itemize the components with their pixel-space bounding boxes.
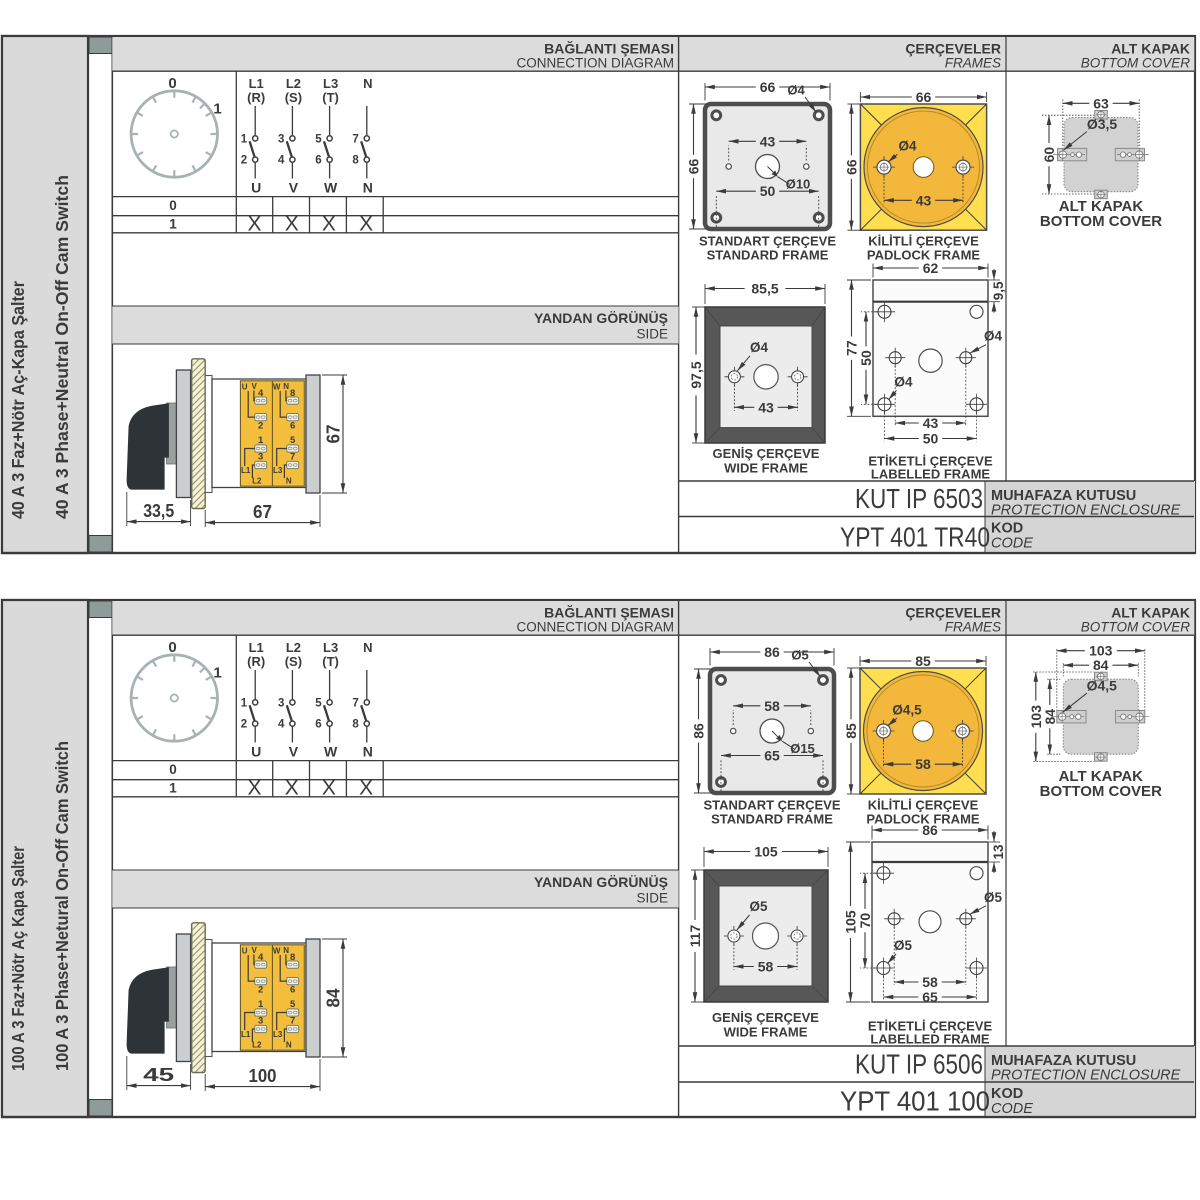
svg-text:N: N <box>363 640 372 655</box>
svg-text:KUT IP 6503: KUT IP 6503 <box>855 483 983 514</box>
svg-text:L1: L1 <box>241 466 251 475</box>
svg-text:1: 1 <box>241 697 248 709</box>
svg-text:33,5: 33,5 <box>143 501 174 521</box>
svg-text:3: 3 <box>278 133 284 145</box>
svg-text:100 A 3 Faz+Nötr Aç Kapa Şalte: 100 A 3 Faz+Nötr Aç Kapa Şalter <box>8 846 28 1071</box>
svg-text:63: 63 <box>1093 95 1109 111</box>
svg-text:V: V <box>289 744 299 760</box>
svg-text:0: 0 <box>168 75 176 92</box>
svg-text:4: 4 <box>278 719 285 731</box>
svg-text:X: X <box>359 212 373 235</box>
svg-text:N: N <box>363 76 372 91</box>
svg-text:YPT 401 TR40: YPT 401 TR40 <box>840 522 990 553</box>
svg-text:Ø4: Ø4 <box>898 139 917 154</box>
svg-text:Ø4,5: Ø4,5 <box>1087 678 1118 694</box>
svg-text:Ø5: Ø5 <box>749 899 768 914</box>
svg-text:CODE: CODE <box>991 1101 1033 1117</box>
svg-text:105: 105 <box>754 844 778 860</box>
svg-text:KİLİTLİ ÇERÇEVE: KİLİTLİ ÇERÇEVE <box>868 798 979 813</box>
svg-text:U: U <box>251 180 261 196</box>
svg-text:GENİŞ ÇERÇEVE: GENİŞ ÇERÇEVE <box>712 1010 819 1025</box>
svg-text:N: N <box>283 382 289 391</box>
svg-text:43: 43 <box>758 399 774 415</box>
svg-text:58: 58 <box>758 959 774 975</box>
svg-text:8: 8 <box>352 719 359 731</box>
svg-text:PROTECTION ENCLOSURE: PROTECTION ENCLOSURE <box>991 503 1181 519</box>
svg-text:9,5: 9,5 <box>991 281 1006 300</box>
svg-text:1: 1 <box>213 101 221 118</box>
svg-text:W: W <box>324 180 338 196</box>
svg-text:84: 84 <box>324 989 344 1008</box>
svg-text:(R): (R) <box>247 654 265 669</box>
svg-text:65: 65 <box>764 748 780 764</box>
svg-text:BAĞLANTI ŞEMASI: BAĞLANTI ŞEMASI <box>544 40 674 57</box>
svg-text:4: 4 <box>278 155 285 167</box>
svg-text:86: 86 <box>764 644 780 660</box>
svg-text:L3: L3 <box>273 1030 283 1039</box>
svg-text:FRAMES: FRAMES <box>945 620 1001 635</box>
svg-text:66: 66 <box>843 159 859 175</box>
svg-text:Ø4: Ø4 <box>894 374 913 389</box>
svg-text:Ø5: Ø5 <box>791 648 808 663</box>
svg-text:2: 2 <box>258 984 263 995</box>
svg-text:N: N <box>363 744 373 760</box>
svg-text:W: W <box>273 383 281 392</box>
svg-text:(R): (R) <box>247 90 265 105</box>
svg-text:58: 58 <box>764 698 780 714</box>
svg-text:KOD: KOD <box>991 521 1023 537</box>
svg-text:3: 3 <box>278 697 284 709</box>
svg-text:FRAMES: FRAMES <box>945 56 1001 71</box>
svg-text:5: 5 <box>315 697 322 709</box>
svg-text:ÇERÇEVELER: ÇERÇEVELER <box>905 41 1001 57</box>
svg-text:13: 13 <box>991 844 1006 860</box>
svg-text:85,5: 85,5 <box>751 281 778 297</box>
svg-text:U: U <box>251 744 261 760</box>
svg-text:Ø4,5: Ø4,5 <box>892 703 922 718</box>
svg-text:W: W <box>273 947 281 956</box>
svg-text:BOTTOM COVER: BOTTOM COVER <box>1040 213 1162 230</box>
svg-text:8: 8 <box>352 155 359 167</box>
svg-text:40 A 3 Faz+Nötr Aç-Kapa Şalter: 40 A 3 Faz+Nötr Aç-Kapa Şalter <box>8 281 28 519</box>
svg-text:(S): (S) <box>285 654 302 669</box>
svg-text:W: W <box>324 744 338 760</box>
svg-text:L1: L1 <box>241 1030 251 1039</box>
svg-text:97,5: 97,5 <box>688 361 704 388</box>
svg-text:N: N <box>286 477 292 486</box>
svg-text:1: 1 <box>169 216 177 231</box>
svg-text:L3: L3 <box>323 640 338 655</box>
svg-text:X: X <box>285 212 299 235</box>
svg-text:1: 1 <box>213 665 221 682</box>
svg-text:X: X <box>247 776 261 799</box>
svg-text:L3: L3 <box>273 466 283 475</box>
svg-text:YANDAN GÖRÜNÜŞ: YANDAN GÖRÜNÜŞ <box>534 874 668 890</box>
svg-text:5: 5 <box>290 435 296 446</box>
svg-text:0: 0 <box>169 762 177 777</box>
svg-text:50: 50 <box>923 431 939 447</box>
svg-text:50: 50 <box>858 350 874 366</box>
svg-text:62: 62 <box>923 260 939 276</box>
svg-text:KUT IP 6506: KUT IP 6506 <box>855 1049 983 1080</box>
svg-text:45: 45 <box>143 1065 174 1085</box>
svg-text:2: 2 <box>241 155 247 167</box>
svg-text:50: 50 <box>760 183 776 199</box>
svg-text:6: 6 <box>315 155 321 167</box>
svg-text:6: 6 <box>290 984 295 995</box>
svg-text:U: U <box>242 383 248 392</box>
svg-text:100: 100 <box>249 1066 277 1086</box>
svg-text:Ø3,5: Ø3,5 <box>1087 116 1118 132</box>
svg-text:X: X <box>322 212 336 235</box>
svg-text:SIDE: SIDE <box>636 327 668 342</box>
svg-text:BOTTOM COVER: BOTTOM COVER <box>1040 783 1162 800</box>
svg-text:STANDARD FRAME: STANDARD FRAME <box>711 812 833 827</box>
svg-text:Ø4: Ø4 <box>787 83 805 98</box>
svg-text:WIDE FRAME: WIDE FRAME <box>724 1025 808 1040</box>
svg-text:43: 43 <box>916 192 932 208</box>
svg-text:X: X <box>285 776 299 799</box>
svg-text:58: 58 <box>922 974 938 990</box>
svg-text:66: 66 <box>686 159 702 175</box>
svg-text:ALT KAPAK: ALT KAPAK <box>1111 605 1190 621</box>
svg-text:V: V <box>252 382 258 391</box>
svg-text:L3: L3 <box>323 76 338 91</box>
svg-text:40 A 3 Phase+Neutral On-Off Ca: 40 A 3 Phase+Neutral On-Off Cam Switch <box>52 175 72 519</box>
svg-text:L2: L2 <box>286 76 301 91</box>
svg-text:(T): (T) <box>322 90 339 105</box>
svg-text:Ø15: Ø15 <box>790 741 815 756</box>
svg-text:2: 2 <box>258 420 263 431</box>
svg-text:(S): (S) <box>285 90 302 105</box>
svg-text:66: 66 <box>760 79 776 95</box>
svg-text:117: 117 <box>687 924 703 947</box>
svg-text:1: 1 <box>258 435 264 446</box>
svg-text:0: 0 <box>169 198 177 213</box>
svg-text:CONNECTION DIAGRAM: CONNECTION DIAGRAM <box>516 620 674 635</box>
svg-text:ALT KAPAK: ALT KAPAK <box>1111 41 1190 57</box>
svg-text:1: 1 <box>241 133 248 145</box>
svg-text:1: 1 <box>258 999 264 1010</box>
svg-text:6: 6 <box>290 420 295 431</box>
svg-text:86: 86 <box>691 723 707 739</box>
svg-text:2: 2 <box>241 719 247 731</box>
svg-text:U: U <box>242 947 248 956</box>
svg-text:L1: L1 <box>249 76 264 91</box>
svg-text:86: 86 <box>922 822 938 838</box>
svg-text:85: 85 <box>915 653 931 669</box>
svg-text:X: X <box>359 776 373 799</box>
svg-text:YANDAN GÖRÜNÜŞ: YANDAN GÖRÜNÜŞ <box>534 310 668 326</box>
svg-text:Ø4: Ø4 <box>984 329 1003 344</box>
svg-text:STANDARD FRAME: STANDARD FRAME <box>707 248 829 263</box>
svg-text:STANDART ÇERÇEVE: STANDART ÇERÇEVE <box>699 234 836 249</box>
svg-text:CODE: CODE <box>991 536 1033 552</box>
svg-text:67: 67 <box>253 502 272 522</box>
svg-text:WIDE FRAME: WIDE FRAME <box>724 461 808 476</box>
svg-text:BAĞLANTI ŞEMASI: BAĞLANTI ŞEMASI <box>544 604 674 621</box>
svg-text:6: 6 <box>315 719 321 731</box>
svg-text:BOTTOM COVER: BOTTOM COVER <box>1081 620 1191 635</box>
svg-text:SIDE: SIDE <box>636 891 668 906</box>
svg-text:KİLİTLİ ÇERÇEVE: KİLİTLİ ÇERÇEVE <box>868 234 979 249</box>
svg-text:43: 43 <box>760 133 776 149</box>
svg-text:N: N <box>283 946 289 955</box>
svg-text:0: 0 <box>168 639 176 656</box>
svg-text:43: 43 <box>923 415 939 431</box>
svg-text:1: 1 <box>169 780 177 795</box>
svg-text:V: V <box>252 946 258 955</box>
svg-text:V: V <box>289 180 299 196</box>
svg-text:CONNECTION DIAGRAM: CONNECTION DIAGRAM <box>516 56 674 71</box>
svg-text:L1: L1 <box>249 640 264 655</box>
svg-text:STANDART ÇERÇEVE: STANDART ÇERÇEVE <box>704 798 841 813</box>
svg-text:5: 5 <box>290 999 296 1010</box>
svg-text:GENİŞ ÇERÇEVE: GENİŞ ÇERÇEVE <box>713 446 820 461</box>
svg-text:84: 84 <box>1093 657 1109 673</box>
svg-text:N: N <box>363 180 373 196</box>
svg-text:7: 7 <box>352 697 358 709</box>
svg-text:Ø10: Ø10 <box>786 176 811 191</box>
svg-text:67: 67 <box>324 425 344 444</box>
svg-text:60: 60 <box>1041 147 1057 163</box>
svg-text:YPT 401 100: YPT 401 100 <box>840 1086 990 1117</box>
svg-text:N: N <box>286 1041 292 1050</box>
svg-text:70: 70 <box>857 913 873 929</box>
svg-text:X: X <box>247 212 261 235</box>
svg-text:Ø5: Ø5 <box>984 890 1003 905</box>
svg-text:100 A 3 Phase+Netural On-Off C: 100 A 3 Phase+Netural On-Off Cam Switch <box>52 741 72 1071</box>
svg-text:65: 65 <box>922 989 938 1005</box>
svg-text:Ø5: Ø5 <box>894 938 913 953</box>
svg-text:85: 85 <box>843 723 859 739</box>
svg-text:Ø4: Ø4 <box>750 340 769 355</box>
svg-text:66: 66 <box>916 89 932 105</box>
svg-text:PROTECTION ENCLOSURE: PROTECTION ENCLOSURE <box>991 1068 1181 1084</box>
svg-text:X: X <box>322 776 336 799</box>
svg-text:84: 84 <box>1042 709 1058 725</box>
svg-text:5: 5 <box>315 133 322 145</box>
svg-text:BOTTOM COVER: BOTTOM COVER <box>1081 56 1191 71</box>
svg-text:ÇERÇEVELER: ÇERÇEVELER <box>905 605 1001 621</box>
svg-text:L2: L2 <box>252 1041 262 1050</box>
svg-text:LABELLED FRAME: LABELLED FRAME <box>871 467 990 482</box>
svg-text:58: 58 <box>915 756 931 772</box>
svg-text:L2: L2 <box>286 640 301 655</box>
svg-text:L2: L2 <box>252 477 262 486</box>
svg-text:7: 7 <box>352 133 358 145</box>
svg-text:KOD: KOD <box>991 1086 1023 1102</box>
svg-text:(T): (T) <box>322 654 339 669</box>
svg-text:LABELLED FRAME: LABELLED FRAME <box>870 1032 989 1047</box>
